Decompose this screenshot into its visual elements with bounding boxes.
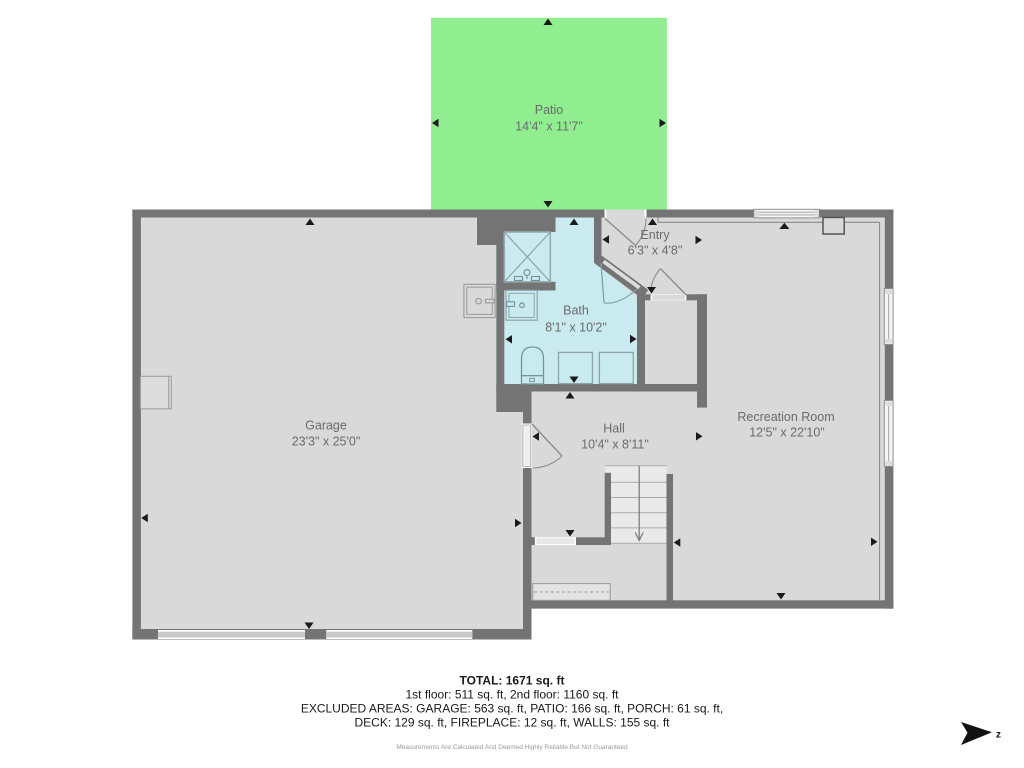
svg-text:DECK: 129 sq. ft, FIREPLACE: 1: DECK: 129 sq. ft, FIREPLACE: 12 sq. ft, … (354, 716, 670, 730)
svg-text:Entry: Entry (640, 228, 670, 242)
svg-text:EXCLUDED AREAS: GARAGE: 563 sq: EXCLUDED AREAS: GARAGE: 563 sq. ft, PATI… (301, 702, 723, 716)
svg-text:z: z (996, 730, 1001, 741)
svg-text:TOTAL: 1671 sq. ft: TOTAL: 1671 sq. ft (460, 674, 565, 688)
svg-text:Bath: Bath (563, 304, 589, 318)
svg-text:23'3" x 25'0": 23'3" x 25'0" (292, 435, 361, 449)
svg-text:1st floor: 511 sq. ft, 2nd flo: 1st floor: 511 sq. ft, 2nd floor: 1160 s… (405, 688, 619, 702)
svg-text:Measurements Are Calculated An: Measurements Are Calculated And Deemed H… (396, 744, 628, 751)
svg-text:Recreation Room: Recreation Room (737, 410, 834, 424)
svg-text:12'5" x 22'10": 12'5" x 22'10" (749, 426, 825, 440)
svg-text:6'3" x 4'8": 6'3" x 4'8" (628, 244, 683, 258)
svg-text:Patio: Patio (535, 103, 564, 117)
svg-text:14'4" x 11'7": 14'4" x 11'7" (515, 120, 583, 134)
svg-text:Hall: Hall (603, 422, 625, 436)
svg-text:Garage: Garage (305, 419, 347, 433)
svg-text:10'4" x 8'11": 10'4" x 8'11" (581, 438, 649, 452)
svg-text:8'1" x 10'2": 8'1" x 10'2" (545, 321, 607, 335)
